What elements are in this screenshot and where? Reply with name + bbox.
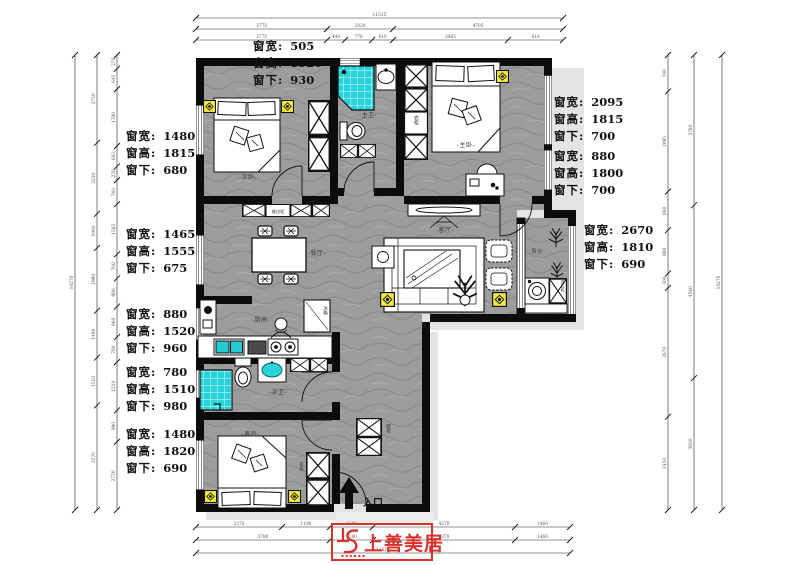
dimension-chain: 37754407708103485810 xyxy=(193,35,566,43)
dimension-value: 3485 xyxy=(445,35,456,40)
window-annotation-value: 690 xyxy=(621,256,645,273)
sideboard-label: 餐边柜 xyxy=(272,208,285,215)
window-annotation-row: 窗宽:2095 xyxy=(554,94,623,111)
window-annotation-row: 窗高:1510 xyxy=(126,381,195,398)
nightstand-symbol xyxy=(204,101,216,113)
room-label-bath2: -次卫- xyxy=(269,388,287,396)
window-annotation-value: 700 xyxy=(591,128,615,145)
sink-bath2 xyxy=(258,358,286,382)
brand-logo: ▪▪▪▪▪▪ 上善美居 xyxy=(331,523,433,561)
window-annotation-value: 1820 xyxy=(163,443,195,460)
window-annotation-top: 窗宽:505窗高:1520窗下:930 xyxy=(253,38,322,89)
window-annotation-label: 窗下: xyxy=(554,128,584,145)
dimension-value: 760 xyxy=(112,188,117,196)
window-annotation-label: 窗高: xyxy=(126,145,156,162)
room-label-balcony: -阳台- xyxy=(529,248,544,255)
bed-master xyxy=(432,62,500,152)
cabinet-masterbath xyxy=(341,144,376,157)
bed-secondary xyxy=(214,98,280,172)
window-annotation-label: 窗高: xyxy=(126,323,156,340)
brand-logo-text: 上善美居 xyxy=(364,529,444,556)
window-annotation-right-2: 窗宽:2670窗高:1810窗下:690 xyxy=(584,222,653,273)
window-annotation-value: 1520 xyxy=(290,55,322,72)
window-annotation-label: 窗宽: xyxy=(126,364,156,381)
window-annotation-value: 680 xyxy=(163,162,187,179)
window-annotation-left-3: 窗宽:780窗高:1510窗下:980 xyxy=(126,364,195,415)
window-annotation-label: 窗宽: xyxy=(126,128,156,145)
dimension-value: 3270 xyxy=(92,452,97,463)
window-annotation-row: 窗宽:1465 xyxy=(126,226,195,243)
window-annotation-value: 1520 xyxy=(163,323,195,340)
shower-bath2 xyxy=(200,370,232,410)
window-annotation-label: 窗宽: xyxy=(126,426,156,443)
closet-bedroom2 xyxy=(309,101,330,171)
window-annotation-value: 930 xyxy=(290,72,314,89)
ac-symbol-master xyxy=(497,71,509,83)
room-label-living: -客厅- xyxy=(436,226,454,234)
wardrobe-guest-label: 衣柜 xyxy=(299,461,304,473)
window-annotation-row: 窗高:1555 xyxy=(126,243,195,260)
room-label-masterbed: -主卧- xyxy=(457,141,475,149)
window-annotation-row: 窗高:1800 xyxy=(554,165,623,182)
toilet-masterbath xyxy=(340,122,365,140)
dimension-value: 980 xyxy=(112,422,117,430)
window-annotation-row: 窗宽:505 xyxy=(253,38,322,55)
window-annotation-label: 窗宽: xyxy=(584,222,614,239)
dimension-value: 880 xyxy=(112,288,117,296)
window-annotation-value: 1815 xyxy=(591,111,623,128)
window-annotation-row: 窗下:700 xyxy=(554,128,623,145)
dimension-value: 4560 xyxy=(689,286,694,297)
dimension-chain: 378045603930 xyxy=(689,52,697,513)
window-annotation-row: 窗下:700 xyxy=(554,182,623,199)
dimension-value: 960 xyxy=(112,317,117,325)
bed-guest xyxy=(218,436,286,508)
dimension-value: 4370 xyxy=(438,522,449,527)
window-annotation-value: 1465 xyxy=(163,226,195,243)
dimension-value: 2750 xyxy=(92,93,97,104)
window-annotation-label: 窗高: xyxy=(554,111,584,128)
dimension-value: 1565 xyxy=(112,224,117,235)
shoe-cabinet-label: 鞋柜 xyxy=(386,423,391,435)
dimension-value: 2770 xyxy=(112,470,117,481)
window-annotation-label: 窗宽: xyxy=(253,38,283,55)
window-annotation-label: 窗宽: xyxy=(126,226,156,243)
window-bedroom2 xyxy=(196,105,204,155)
window-annotation-value: 1800 xyxy=(591,165,623,182)
dimension-value: 300 xyxy=(663,276,668,284)
dimension-value: 11515 xyxy=(373,13,387,18)
sideboard-dining xyxy=(243,204,330,216)
dimension-value: 2095 xyxy=(663,136,668,147)
dimension-value: 645 xyxy=(112,75,117,83)
dimension-chain: 2706451780645270760156576088096078015109… xyxy=(112,52,120,513)
dimension-value: 770 xyxy=(354,35,362,40)
side-table xyxy=(372,246,394,268)
room-label-dining: -餐厅- xyxy=(308,249,326,257)
window-annotation-value: 780 xyxy=(163,364,187,381)
brand-logo-subtext: ▪▪▪▪▪▪ xyxy=(341,553,366,558)
window-annotation-value: 1510 xyxy=(163,381,195,398)
dimension-value: 3775 xyxy=(256,24,267,29)
window-annotation-row: 窗下:690 xyxy=(126,460,195,477)
window-annotation-label: 窗高: xyxy=(126,443,156,460)
window-annotation-row: 窗下:960 xyxy=(126,340,195,357)
window-annotation-left-2: 窗宽:880窗高:1520窗下:960 xyxy=(126,306,195,357)
fridge-label: 冰箱 xyxy=(323,305,328,317)
dimension-value: 740 xyxy=(663,69,668,77)
window-annotation-left-4: 窗宽:1480窗高:1820窗下:690 xyxy=(126,426,195,477)
cabinet-bath2 xyxy=(291,358,328,371)
nightstand-symbol xyxy=(289,491,301,503)
window-dining xyxy=(196,235,204,285)
room-label-guestbed: -客卧- xyxy=(242,430,260,438)
window-annotation-row: 窗宽:780 xyxy=(126,364,195,381)
window-annotation-label: 窗高: xyxy=(253,55,283,72)
window-master1 xyxy=(544,75,552,145)
floorplan-page: 衣柜 餐边柜 xyxy=(0,0,800,565)
window-annotation-row: 窗宽:1480 xyxy=(126,128,195,145)
window-annotation-row: 窗下:980 xyxy=(126,398,195,415)
window-annotation-label: 窗下: xyxy=(253,72,283,89)
window-annotation-row: 窗下:675 xyxy=(126,260,195,277)
nightstand-symbol xyxy=(282,101,294,113)
window-annotation-value: 675 xyxy=(163,260,187,277)
dimension-value: 2570 xyxy=(234,522,245,527)
dimension-chain: 740209580088030026702450 xyxy=(663,52,671,513)
window-annotation-value: 880 xyxy=(591,148,615,165)
dimension-value: 2230 xyxy=(92,173,97,184)
balcony-glass-door xyxy=(517,218,525,314)
window-annotation-label: 窗下: xyxy=(554,182,584,199)
window-annotation-row: 窗高:1520 xyxy=(253,55,322,72)
window-annotation-label: 窗下: xyxy=(126,162,156,179)
coffee-table xyxy=(404,250,460,288)
window-annotation-label: 窗高: xyxy=(554,165,584,182)
window-annotation-row: 窗宽:2670 xyxy=(584,222,653,239)
floor-symbol xyxy=(493,293,507,307)
window-annotation-value: 880 xyxy=(163,306,187,323)
dimension-value: 880 xyxy=(663,247,668,255)
window-annotation-label: 窗下: xyxy=(584,256,614,273)
dimension-value: 760 xyxy=(112,262,117,270)
dimension-chain: 14270 xyxy=(70,52,78,513)
window-annotation-label: 窗宽: xyxy=(126,306,156,323)
window-annotation-label: 窗下: xyxy=(126,460,156,477)
brand-logo-icon: ▪▪▪▪▪▪ xyxy=(336,527,360,557)
window-annotation-label: 窗下: xyxy=(126,340,156,357)
window-annotation-value: 1480 xyxy=(163,128,195,145)
room-label-kitchen: -厨房- xyxy=(252,316,270,324)
window-annotation-value: 2095 xyxy=(591,94,623,111)
window-master2 xyxy=(544,150,552,190)
window-annotation-value: 1555 xyxy=(163,243,195,260)
dimension-value: 14270 xyxy=(717,275,722,289)
washing-machine xyxy=(525,278,549,304)
dimension-value: 270 xyxy=(112,57,117,65)
window-annotation-label: 窗下: xyxy=(126,260,156,277)
floor-symbol xyxy=(381,293,395,307)
window-balcony xyxy=(568,225,576,315)
window-annotation-left-1: 窗宽:1465窗高:1555窗下:675 xyxy=(126,226,195,277)
window-annotation-value: 980 xyxy=(163,398,187,415)
window-annotation-row: 窗高:1810 xyxy=(584,239,653,256)
window-annotation-value: 1815 xyxy=(163,145,195,162)
wardrobe-master xyxy=(405,65,428,160)
floorplan-drawing: 衣柜 餐边柜 xyxy=(0,0,800,565)
window-annotation-row: 窗高:1815 xyxy=(126,145,195,162)
sink-masterbath xyxy=(376,64,396,90)
dimension-value: 3780 xyxy=(257,535,268,540)
window-annotation-row: 窗下:690 xyxy=(584,256,653,273)
dimension-value: 4795 xyxy=(473,24,484,29)
window-annotation-right-0: 窗宽:2095窗高:1815窗下:700 xyxy=(554,94,623,145)
dimension-value: 810 xyxy=(379,35,387,40)
washer-label: 洗衣机 xyxy=(561,279,566,293)
dimension-value: 1510 xyxy=(112,381,117,392)
entry-label: 入口 xyxy=(363,497,383,509)
dimension-value: 810 xyxy=(531,35,539,40)
dimension-value: 1490 xyxy=(92,328,97,339)
window-guestbed xyxy=(196,440,204,490)
window-annotation-row: 窗高:1815 xyxy=(554,111,623,128)
window-annotation-row: 窗宽:1480 xyxy=(126,426,195,443)
wardrobe-label: 衣柜 xyxy=(413,114,419,126)
room-label-bedroom2: -次卧- xyxy=(239,173,257,181)
nightstand-symbol xyxy=(205,491,217,503)
dimension-value: 3780 xyxy=(689,124,694,135)
dimension-value: 645 xyxy=(112,152,117,160)
window-annotation-value: 1810 xyxy=(621,239,653,256)
window-annotation-label: 窗高: xyxy=(126,381,156,398)
dimension-value: 1780 xyxy=(112,112,117,123)
window-masterbath xyxy=(340,58,360,66)
dimension-chain: 11515 xyxy=(193,13,566,21)
window-annotation-row: 窗高:1520 xyxy=(126,323,195,340)
fridge xyxy=(304,300,330,332)
window-annotation-value: 960 xyxy=(163,340,187,357)
window-annotation-label: 窗宽: xyxy=(554,148,584,165)
dimension-value: 440 xyxy=(332,35,340,40)
dimension-value: 1460 xyxy=(537,522,548,527)
window-annotation-value: 690 xyxy=(163,460,187,477)
dimension-chain: 2750223010601980149015103270 xyxy=(92,52,100,513)
dimension-value: 1510 xyxy=(92,376,97,387)
window-annotation-value: 1480 xyxy=(163,426,195,443)
dimension-value: 3930 xyxy=(689,438,694,449)
dimension-value: 1980 xyxy=(92,274,97,285)
dimension-value: 1060 xyxy=(92,225,97,236)
window-annotation-label: 窗下: xyxy=(126,398,156,415)
window-annotation-value: 2670 xyxy=(621,222,653,239)
window-annotation-label: 窗高: xyxy=(126,243,156,260)
dimension-value: 1460 xyxy=(537,535,548,540)
window-annotation-right-1: 窗宽:880窗高:1800窗下:700 xyxy=(554,148,623,199)
dimension-value: 780 xyxy=(112,345,117,353)
window-annotation-label: 窗宽: xyxy=(554,94,584,111)
window-annotation-row: 窗宽:880 xyxy=(126,306,195,323)
dimension-value: 1190 xyxy=(300,522,311,527)
dimension-value: 800 xyxy=(663,206,668,214)
window-annotation-value: 700 xyxy=(591,182,615,199)
dimension-chain: 14270 xyxy=(717,52,725,513)
dimension-value: 14270 xyxy=(70,275,75,289)
dimension-chain: 377520204795 xyxy=(193,24,566,32)
toilet-bath2 xyxy=(235,358,251,387)
window-annotation-row: 窗下:680 xyxy=(126,162,195,179)
window-annotation-row: 窗高:1820 xyxy=(126,443,195,460)
shoe-cabinet xyxy=(357,419,381,456)
window-annotation-left-0: 窗宽:1480窗高:1815窗下:680 xyxy=(126,128,195,179)
dimension-value: 2020 xyxy=(355,24,366,29)
dimension-value: 270 xyxy=(112,169,117,177)
dimension-value: 2670 xyxy=(663,347,668,358)
window-annotation-row: 窗下:930 xyxy=(253,72,322,89)
dimension-value: 2450 xyxy=(663,458,668,469)
wardrobe-guest xyxy=(307,453,330,505)
room-label-masterbath: -主卫- xyxy=(359,111,377,119)
window-annotation-row: 窗宽:880 xyxy=(554,148,623,165)
window-annotation-label: 窗高: xyxy=(584,239,614,256)
window-annotation-value: 505 xyxy=(290,38,314,55)
